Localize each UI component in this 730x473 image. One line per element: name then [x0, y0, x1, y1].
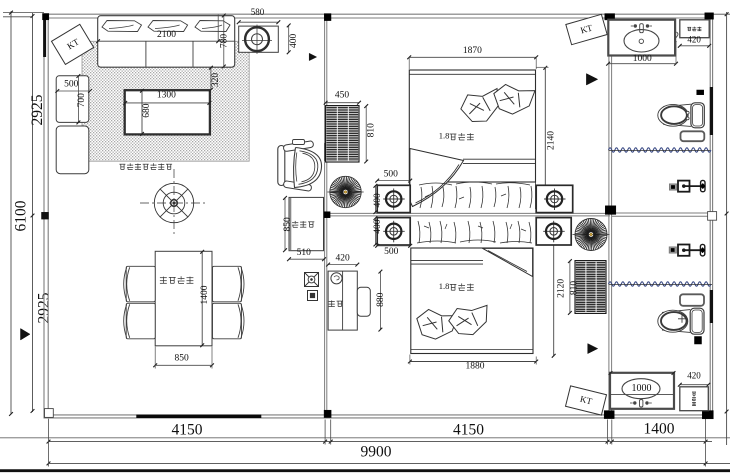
svg-text:510: 510	[297, 248, 312, 258]
svg-text:680: 680	[142, 103, 152, 118]
svg-text:500: 500	[64, 80, 79, 90]
svg-text:850: 850	[283, 217, 293, 232]
svg-text:780: 780	[219, 34, 229, 49]
svg-text:420: 420	[687, 34, 701, 44]
svg-text:1000: 1000	[633, 54, 652, 64]
svg-text:420: 420	[687, 371, 701, 381]
svg-text:1300: 1300	[157, 91, 176, 101]
svg-text:4150: 4150	[453, 421, 484, 438]
svg-text:810: 810	[570, 281, 580, 296]
svg-text:500: 500	[384, 247, 399, 257]
svg-text:2140: 2140	[547, 131, 557, 150]
svg-text:9900: 9900	[361, 443, 392, 460]
svg-text:1.8: 1.8	[439, 131, 450, 141]
svg-text:2120: 2120	[556, 279, 566, 298]
svg-text:320: 320	[211, 73, 221, 88]
svg-text:1400: 1400	[644, 420, 675, 437]
svg-text:580: 580	[251, 7, 265, 17]
svg-text:500: 500	[384, 169, 399, 179]
svg-text:880: 880	[376, 292, 386, 307]
svg-text:1000: 1000	[632, 383, 652, 394]
svg-text:2100: 2100	[157, 30, 176, 40]
svg-text:4150: 4150	[172, 421, 203, 438]
svg-text:400: 400	[373, 219, 383, 234]
svg-text:1400: 1400	[200, 285, 210, 304]
svg-text:400: 400	[373, 193, 383, 208]
svg-text:6100: 6100	[13, 200, 30, 231]
svg-text:1.8: 1.8	[439, 281, 450, 291]
svg-text:850: 850	[174, 353, 189, 363]
svg-text:450: 450	[335, 90, 350, 100]
svg-text:1870: 1870	[463, 46, 482, 56]
svg-text:1880: 1880	[466, 361, 485, 371]
svg-text:810: 810	[366, 123, 376, 138]
svg-text:400: 400	[289, 34, 299, 49]
svg-text:420: 420	[335, 253, 350, 263]
svg-text:700: 700	[77, 93, 87, 108]
